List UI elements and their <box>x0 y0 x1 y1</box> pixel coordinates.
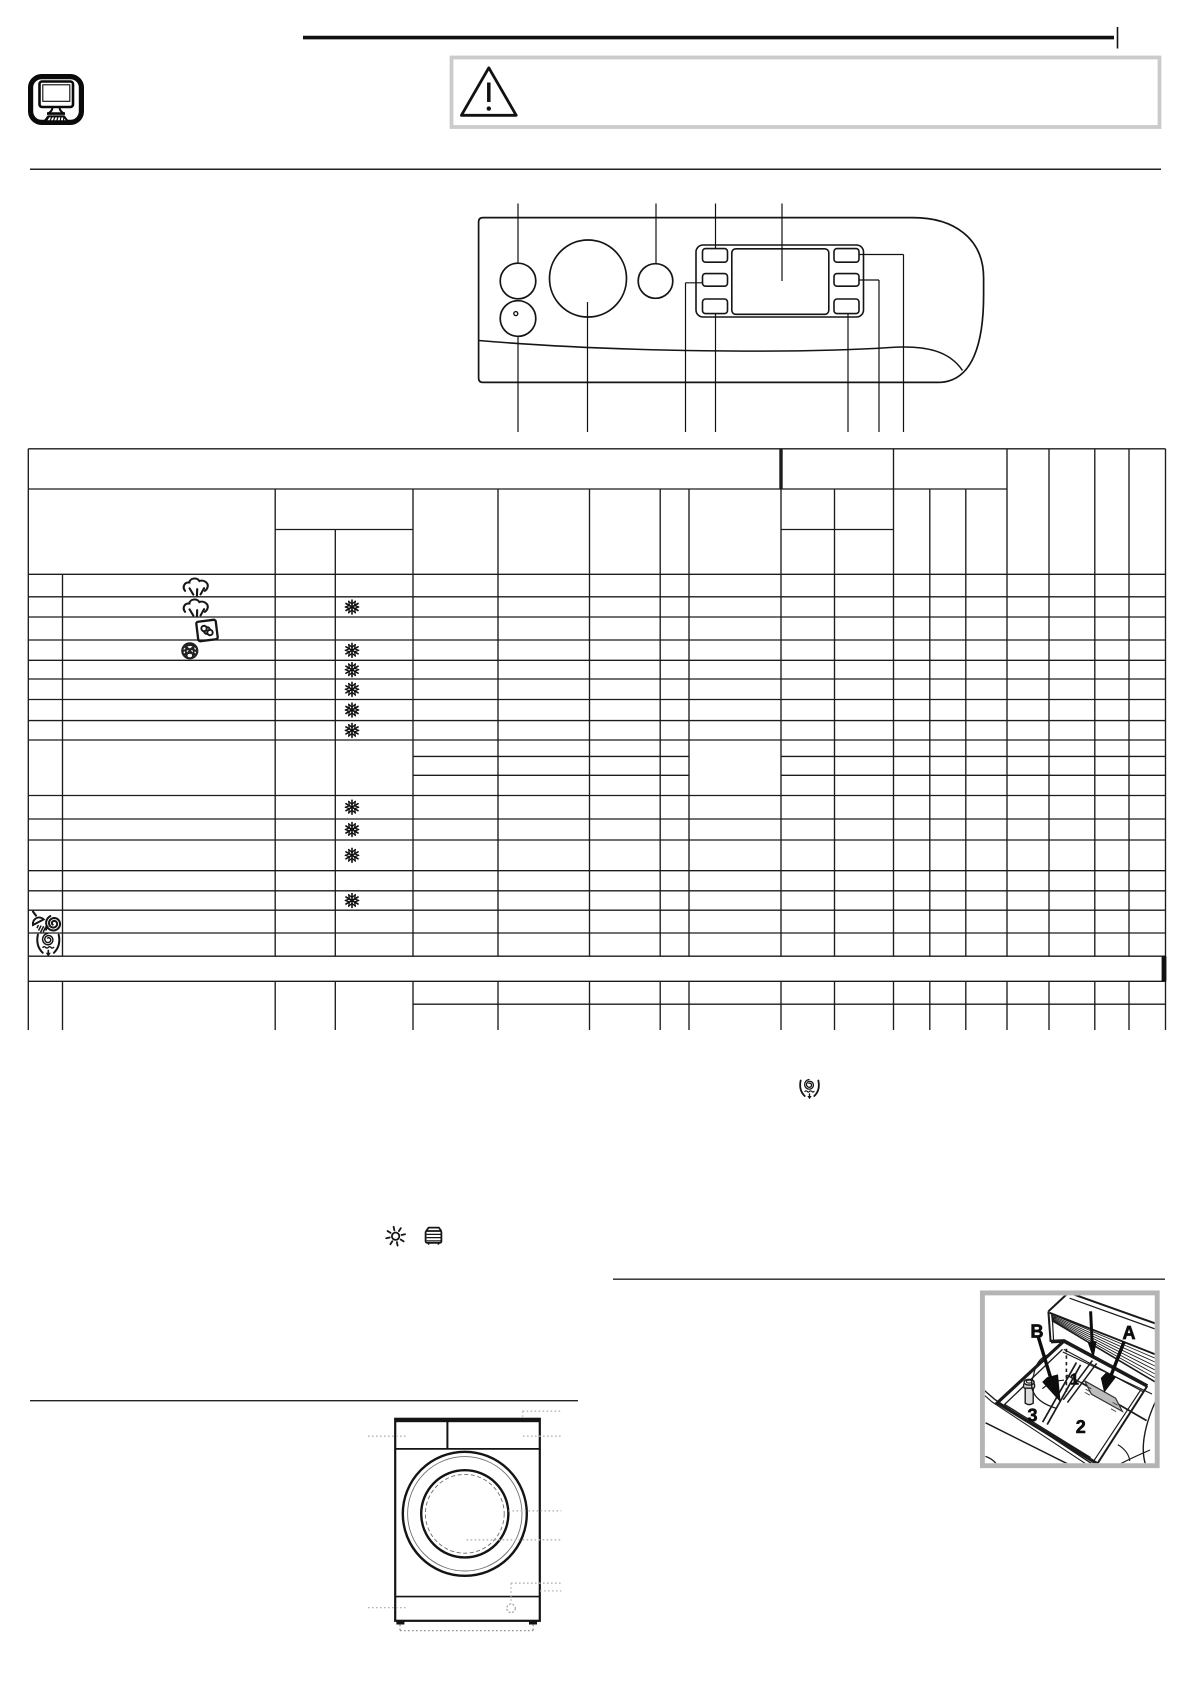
svg-text:B: B <box>1031 1321 1044 1341</box>
svg-text:3: 3 <box>1027 1405 1037 1425</box>
svg-text:2: 2 <box>1076 1417 1086 1437</box>
svg-text:1: 1 <box>1070 1372 1079 1389</box>
svg-text:A: A <box>1123 1323 1136 1343</box>
